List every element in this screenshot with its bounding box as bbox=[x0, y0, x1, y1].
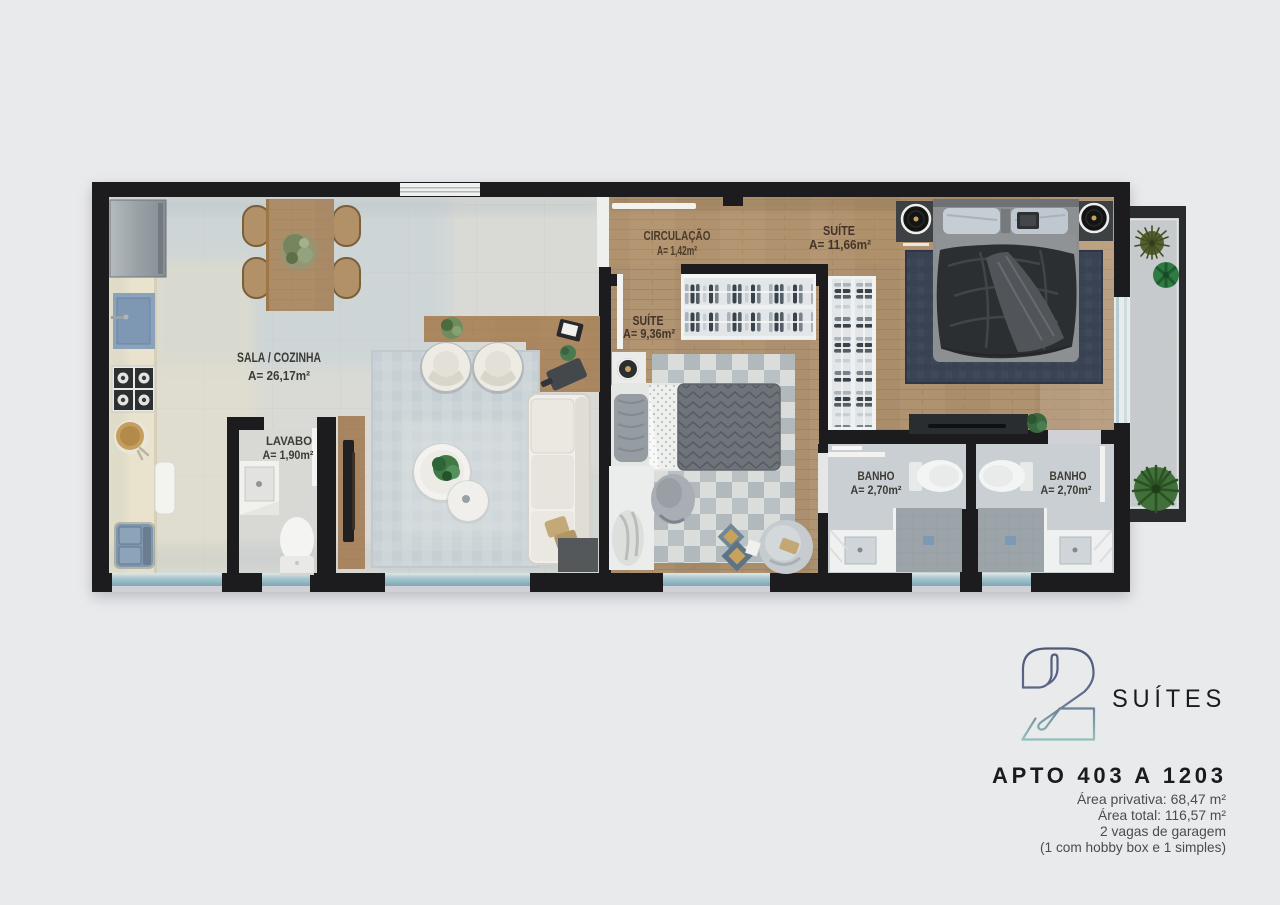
svg-text:A= 1,90m²: A= 1,90m² bbox=[263, 448, 314, 462]
svg-text:A= 26,17m²: A= 26,17m² bbox=[248, 368, 311, 383]
svg-text:SUÍTE: SUÍTE bbox=[823, 223, 855, 238]
svg-text:Área privativa: 68,47 m²: Área privativa: 68,47 m² bbox=[1077, 791, 1226, 807]
svg-text:LAVABO: LAVABO bbox=[266, 434, 312, 448]
svg-text:Área total: 116,57 m²: Área total: 116,57 m² bbox=[1098, 807, 1226, 823]
svg-text:(1 com hobby box e 1 simples): (1 com hobby box e 1 simples) bbox=[1040, 839, 1226, 855]
svg-text:A= 11,66m²: A= 11,66m² bbox=[809, 237, 872, 252]
svg-text:SALA / COZINHA: SALA / COZINHA bbox=[237, 350, 321, 365]
svg-text:BANHO: BANHO bbox=[858, 469, 895, 483]
svg-text:A= 9,36m²: A= 9,36m² bbox=[623, 326, 676, 341]
svg-text:2 vagas de garagem: 2 vagas de garagem bbox=[1100, 823, 1226, 839]
svg-text:CIRCULAÇÃO: CIRCULAÇÃO bbox=[644, 228, 711, 243]
svg-text:A= 1,42m²: A= 1,42m² bbox=[657, 244, 697, 258]
svg-text:BANHO: BANHO bbox=[1050, 469, 1087, 483]
svg-text:APTO 403 A 1203: APTO 403 A 1203 bbox=[992, 763, 1226, 788]
svg-text:A= 2,70m²: A= 2,70m² bbox=[1041, 483, 1092, 497]
svg-text:A= 2,70m²: A= 2,70m² bbox=[851, 483, 902, 497]
svg-text:SUÍTES: SUÍTES bbox=[1112, 684, 1226, 713]
